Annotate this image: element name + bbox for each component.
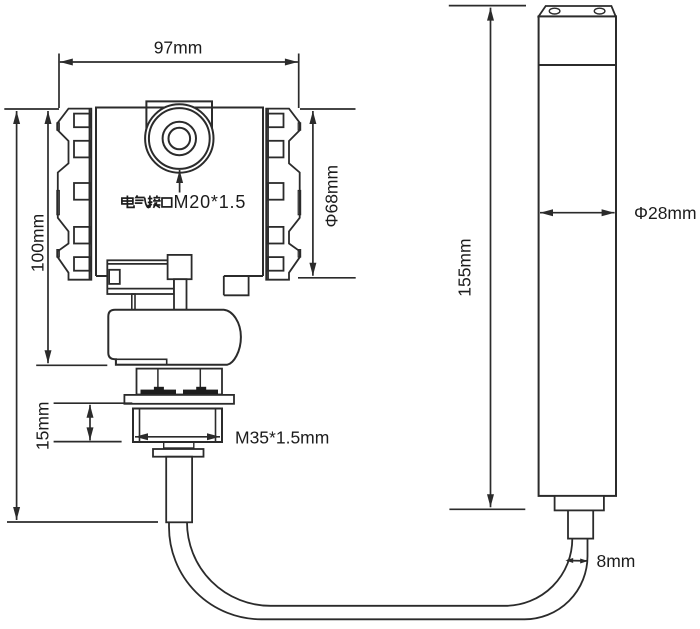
svg-text:Φ68mm: Φ68mm <box>322 165 342 228</box>
svg-text:155mm: 155mm <box>455 238 475 296</box>
svg-text:100mm: 100mm <box>28 214 48 272</box>
svg-text:97mm: 97mm <box>154 38 203 58</box>
svg-text:M20*1.5: M20*1.5 <box>174 192 247 212</box>
svg-text:M35*1.5mm: M35*1.5mm <box>235 428 329 448</box>
svg-text:15mm: 15mm <box>33 401 53 450</box>
svg-text:8mm: 8mm <box>597 551 636 571</box>
svg-text:Φ28mm: Φ28mm <box>634 203 697 223</box>
